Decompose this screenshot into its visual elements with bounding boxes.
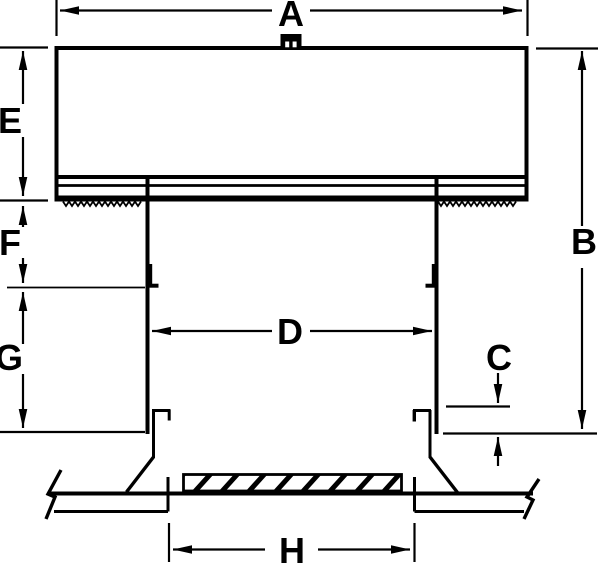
dim-label-f: F	[0, 222, 21, 263]
dim-label-d: D	[277, 311, 303, 352]
vent-dimension-diagram: A B C D E F G	[0, 0, 600, 564]
diagram-canvas: A B C D E F G	[0, 0, 600, 564]
dim-label-b: B	[571, 221, 597, 262]
dim-label-a: A	[278, 0, 304, 34]
cap-top-tab	[281, 34, 302, 47]
dim-label-g: G	[0, 337, 23, 378]
dim-label-e: E	[0, 100, 22, 141]
dim-label-h: H	[279, 530, 305, 564]
cap-body	[57, 48, 527, 177]
dim-label-c: C	[486, 337, 512, 378]
